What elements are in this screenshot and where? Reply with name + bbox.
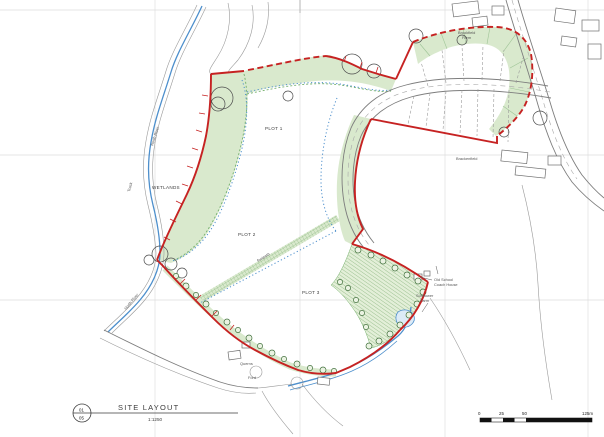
- querns-label: Querns: [240, 361, 253, 366]
- scale-tick-25: 25: [499, 411, 504, 416]
- plot1-label: PLOT 1: [265, 126, 283, 131]
- north-river-label-upper: North River: [149, 125, 160, 146]
- wetlands-label: WETLANDS: [152, 185, 180, 190]
- title-block: 01 05 SITE LAYOUT 1:1250: [73, 403, 238, 422]
- drawing-title: SITE LAYOUT: [118, 403, 179, 412]
- north-river-label-lower: North River: [123, 292, 140, 311]
- sheet-number-bottom: 05: [79, 416, 84, 421]
- plan-canvas: PLOT 1 PLOT 2 PLOT 3 WETLANDS North Rive…: [0, 0, 604, 437]
- scale-tick-0: 0: [478, 411, 481, 416]
- west-buffer-green: [157, 71, 248, 263]
- ditch-street: [321, 98, 337, 231]
- plot3-planting-hatch: [331, 244, 428, 348]
- plot-dividers-south: [408, 89, 509, 142]
- track-label: Track: [126, 182, 133, 193]
- buildings: [228, 1, 601, 385]
- brookfield-farm-label-2: Farm: [462, 35, 471, 40]
- track-top-left: [210, 3, 230, 74]
- river-bank-east: [112, 7, 206, 333]
- north-buffer-green: [244, 55, 396, 94]
- plot3-label: PLOT 3: [302, 290, 320, 295]
- brackenfield-label: Brackenfield: [456, 156, 477, 161]
- south-buffer-trees: [173, 273, 336, 373]
- plot2-label: PLOT 2: [238, 232, 256, 237]
- scale-tick-125m: 125m: [582, 411, 593, 416]
- sunflower-farm-label-2: Farm: [420, 298, 429, 303]
- coach-house-label: Coach House: [434, 282, 458, 287]
- ford-label: Ford: [248, 375, 256, 380]
- sheet-number-top: 01: [79, 408, 84, 413]
- site-layout-drawing: PLOT 1 PLOT 2 PLOT 3 WETLANDS North Rive…: [0, 0, 604, 437]
- drawing-scale: 1:1250: [148, 417, 162, 422]
- scale-bar: 0 25 50 125m: [478, 411, 593, 422]
- south-buffer-green: [165, 268, 336, 373]
- scale-tick-50: 50: [522, 411, 527, 416]
